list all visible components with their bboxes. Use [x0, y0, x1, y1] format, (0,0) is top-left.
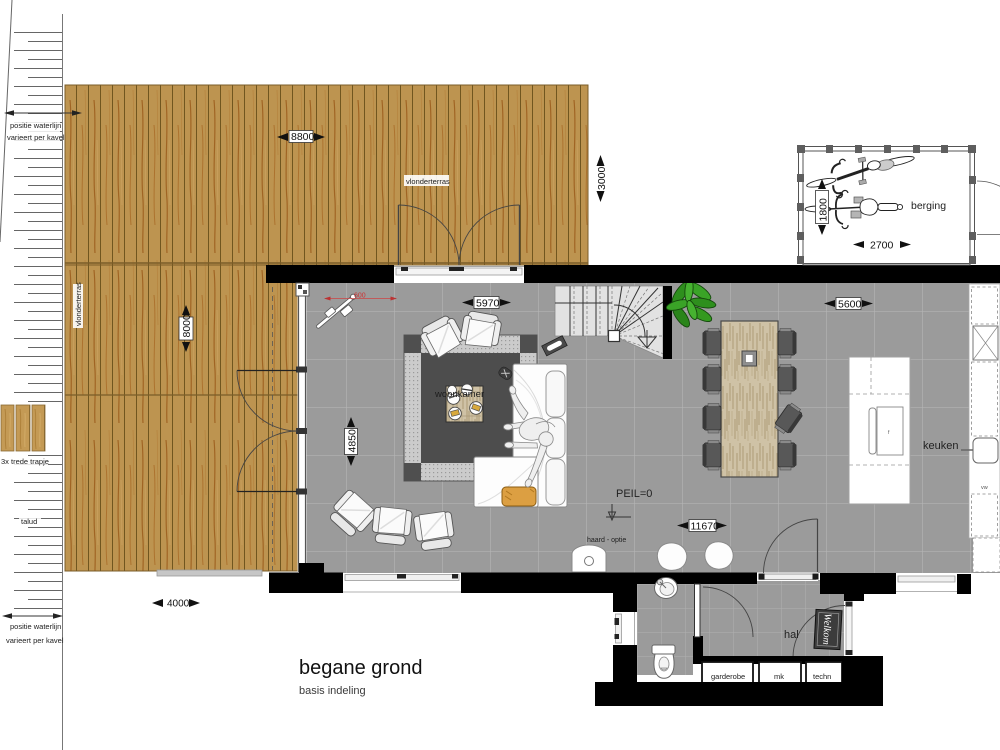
svg-text:4000: 4000: [167, 599, 190, 610]
svg-text:varieert per kavel: varieert per kavel: [6, 636, 64, 645]
svg-text:hal: hal: [784, 629, 799, 641]
svg-text:begane grond: begane grond: [299, 657, 422, 679]
svg-text:varieert per kavel: varieert per kavel: [7, 133, 65, 142]
svg-text:3x trede trapje: 3x trede trapje: [1, 457, 49, 466]
svg-text:11670: 11670: [691, 521, 720, 533]
svg-text:1800: 1800: [818, 198, 830, 222]
svg-text:3000: 3000: [596, 166, 608, 190]
svg-text:talud: talud: [21, 517, 37, 526]
svg-text:600: 600: [354, 293, 366, 300]
svg-text:2700: 2700: [870, 240, 894, 252]
svg-text:positie waterlijn: positie waterlijn: [10, 121, 61, 130]
svg-text:berging: berging: [911, 200, 946, 212]
svg-text:vw: vw: [981, 485, 988, 491]
svg-text:keuken: keuken: [923, 440, 958, 452]
svg-text:8800: 8800: [291, 131, 315, 143]
svg-text:vlonderterras: vlonderterras: [406, 177, 450, 186]
svg-text:haard - optie: haard - optie: [587, 537, 626, 544]
svg-text:Welkom: Welkom: [820, 613, 833, 645]
svg-text:8000: 8000: [181, 314, 193, 338]
svg-text:vlonderterras: vlonderterras: [74, 282, 83, 326]
svg-text:5970: 5970: [476, 298, 500, 310]
svg-text:5600: 5600: [838, 299, 862, 311]
svg-text:4850: 4850: [347, 429, 359, 453]
svg-text:positie waterlijn: positie waterlijn: [10, 622, 61, 631]
svg-text:basis indeling: basis indeling: [299, 685, 366, 697]
svg-text:garderobe: garderobe: [711, 672, 745, 681]
svg-text:mk: mk: [774, 672, 784, 681]
svg-text:woonkamer: woonkamer: [434, 389, 484, 400]
svg-text:techn: techn: [813, 672, 831, 681]
svg-text:PEIL=0: PEIL=0: [616, 488, 652, 500]
